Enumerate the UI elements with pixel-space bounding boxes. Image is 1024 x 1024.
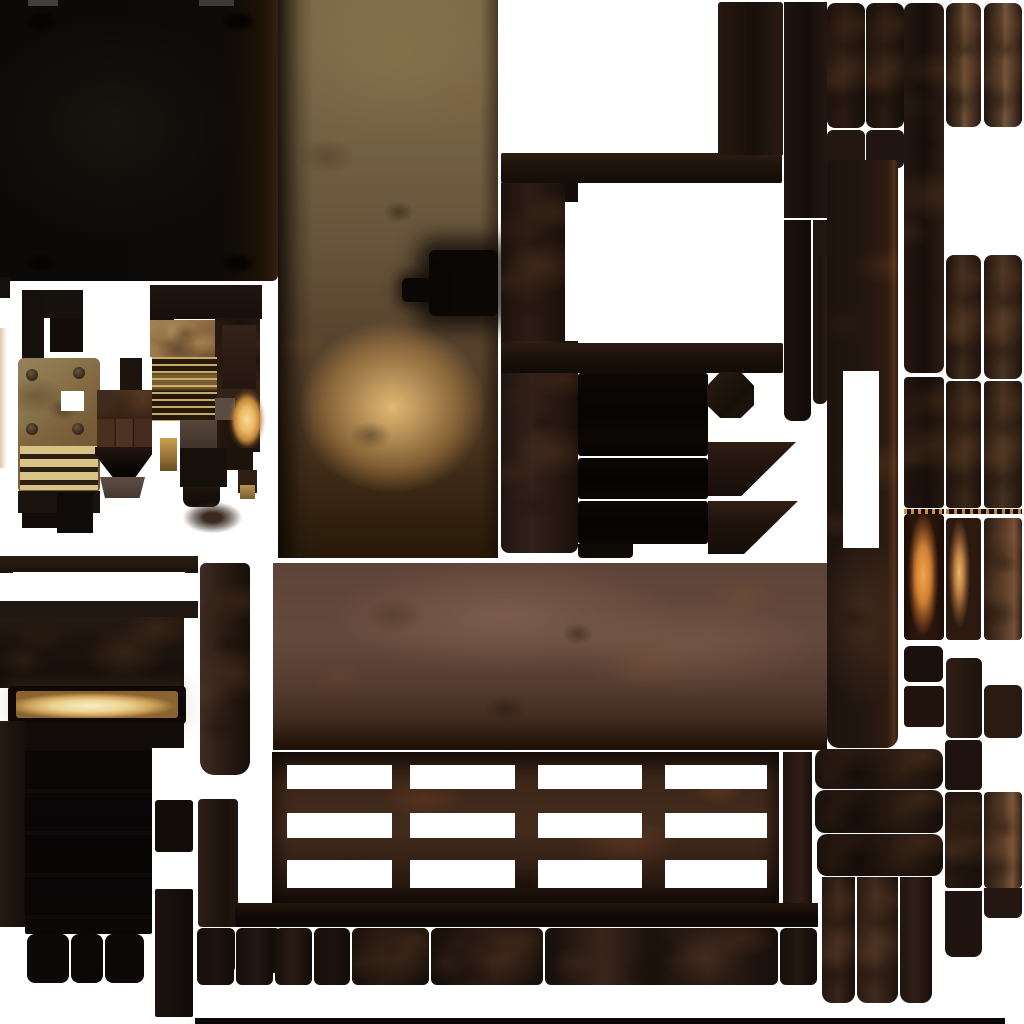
bottom-right-band-3: [817, 834, 943, 876]
page: { "meta": { "description": "grunge rust …: [0, 0, 1024, 1024]
thin-sliver-strip: [819, 257, 827, 403]
baseboard-seg-1: [197, 928, 234, 985]
machine-dark-cluster-2: [227, 448, 253, 470]
shelf-slab-upper: [0, 601, 198, 618]
mid-column-seg-3: [904, 646, 943, 682]
top-left-shadow-oval-tl: [24, 10, 58, 34]
right-pillar-pair-c1: [946, 255, 981, 379]
machine-shadow-blob: [182, 500, 243, 535]
bottom-right-band-1: [815, 749, 943, 789]
mid-column-seg-2: [904, 377, 944, 508]
machine-segment-bar: [97, 419, 152, 448]
mid-column-seg-1: [904, 3, 944, 373]
hanging-strip-3: [900, 877, 932, 1003]
machine-dark-cluster-1: [180, 448, 227, 487]
machine-base-column: [57, 493, 93, 533]
machine-right-column-panel: [222, 325, 256, 389]
pedestal-left-column: [0, 721, 27, 927]
mid-column-glow-seg: [904, 514, 944, 640]
machine-right-top-block: [150, 285, 262, 319]
top-left-plate-texture: [0, 0, 278, 281]
top-left-shadow-oval-tr: [220, 10, 256, 32]
hanging-strip-2: [857, 877, 898, 1003]
grate-hole-r3c4: [665, 860, 767, 888]
machine-mid-post: [120, 358, 142, 390]
baseboard-seg-5: [352, 928, 429, 985]
grate-hole-r2c1: [287, 813, 392, 838]
bottom-right-col-2: [945, 792, 982, 888]
right-pillar-pair-b1: [946, 3, 981, 127]
grate-hole-r1c4: [665, 765, 767, 789]
pillar-strip-wide: [784, 220, 811, 421]
frame-top-horizontal-bar: [501, 153, 782, 183]
right-column-seg-e2: [984, 685, 1022, 738]
baseboard-seg-2: [236, 928, 273, 985]
baseboard-long-bar: [235, 903, 818, 927]
grate-hole-r1c3: [538, 765, 642, 789]
lamp-base: [17, 723, 184, 748]
grate-hole-r3c3: [538, 860, 642, 888]
riveted-plate-stripes: [20, 446, 98, 490]
machine-top-cap: [44, 290, 83, 318]
gold-nub: [240, 485, 255, 499]
bottom-right-col-5: [984, 888, 1022, 918]
grate-hole-r1c2: [410, 765, 515, 789]
bottom-right-col-3: [984, 792, 1022, 888]
black-cylinder-stack-1: [578, 373, 708, 456]
machine-bucket: [100, 477, 145, 498]
pedestal-big-column: [25, 747, 152, 934]
black-cylinder-stack-3: [578, 501, 708, 544]
mid-column-seg-4: [904, 686, 944, 727]
rivet-br: [72, 423, 84, 435]
grate-hole-r2c2: [410, 813, 515, 838]
pedestal-foot-2: [71, 934, 103, 983]
right-column-seg-d2: [984, 381, 1022, 508]
grate-hole-r3c1: [287, 860, 392, 888]
top-left-nub: [0, 277, 10, 298]
octagon-nut: [707, 372, 754, 418]
right-column-seg-e1: [946, 658, 982, 738]
top-left-tab-left: [28, 0, 58, 6]
shelf-slab-lower: [0, 617, 184, 688]
grate-hole-r1c1: [287, 765, 392, 789]
wall-panel-dark-block-tab: [402, 278, 432, 302]
right-pillar-pair-a1: [827, 3, 865, 128]
pipe-column-lower: [198, 799, 238, 927]
rivet-bl: [26, 423, 38, 435]
grate-hole-r2c3: [538, 813, 642, 838]
machine-mid-block: [97, 390, 152, 420]
pedestal-foot-1: [27, 934, 69, 983]
top-left-tab-right: [199, 0, 234, 6]
frame-mid-horizontal-bar: [501, 343, 783, 373]
black-cylinder-stack-2: [578, 458, 708, 499]
grate-hole-r3c2: [410, 860, 515, 888]
ramp-wedge-upper: [708, 442, 796, 496]
bottom-right-col-1: [945, 740, 982, 790]
frame-top-vertical-bar: [718, 2, 783, 155]
lamp-glow-blob: [228, 386, 266, 456]
right-column-gold-divider: [946, 509, 1022, 514]
grey-block: [180, 420, 217, 450]
left-edge-glow: [0, 328, 7, 468]
striped-plate-stack: [152, 357, 217, 421]
frame-notch: [565, 183, 578, 202]
black-cylinder-tab: [578, 544, 633, 558]
machine-funnel: [95, 447, 152, 478]
bottom-edge-band: [195, 1018, 1005, 1024]
shelf-top-bar: [0, 556, 198, 573]
wall-panel-dark-block: [429, 250, 498, 316]
machine-top-post: [22, 290, 44, 360]
riveted-plate-cutout: [61, 391, 84, 411]
right-pillar-pair-c2: [984, 255, 1022, 379]
pipe-column-upper: [200, 563, 250, 775]
big-column-white-inset: [843, 371, 879, 548]
right-pillar-pair-b2: [984, 3, 1022, 127]
texture-atlas-canvas: [0, 0, 1024, 1024]
machine-top-step: [50, 318, 83, 352]
grate-hole-r2c4: [665, 813, 767, 838]
grate-right-strip: [783, 752, 812, 905]
mid-bottom-block: [155, 800, 193, 852]
pillar-right-of-frame: [784, 2, 827, 218]
baseboard-seg-6: [431, 928, 543, 985]
bottom-right-band-2: [815, 790, 943, 833]
top-left-shadow-oval-br: [220, 252, 256, 274]
hanging-strip-1: [822, 877, 855, 1003]
rivet-tr: [73, 367, 85, 379]
shelf-window: [13, 572, 185, 602]
gold-block: [150, 320, 215, 357]
ramp-wedge-lower: [708, 501, 798, 554]
rivet-tl: [26, 369, 38, 381]
baseboard-seg-8: [780, 928, 817, 985]
right-column-glow-seg-1: [946, 518, 981, 640]
right-column-seg-d1: [946, 381, 981, 508]
pedestal-foot-3: [105, 934, 144, 983]
right-column-glow-seg-2: [984, 518, 1022, 640]
gold-bar-small: [160, 438, 177, 471]
frame-left-vertical-upper: [501, 183, 565, 343]
bottom-right-col-4: [945, 891, 982, 957]
baseboard-seg-4: [314, 928, 350, 985]
baseboard-seg-7: [545, 928, 778, 985]
top-left-shadow-oval-bl: [24, 252, 58, 274]
mid-bottom-strip: [155, 889, 193, 1017]
baseboard-seg-3: [275, 928, 312, 985]
floor-panel-texture: [273, 563, 827, 750]
right-pillar-pair-a2: [866, 3, 904, 128]
lamp-glow-tube: [16, 691, 178, 718]
